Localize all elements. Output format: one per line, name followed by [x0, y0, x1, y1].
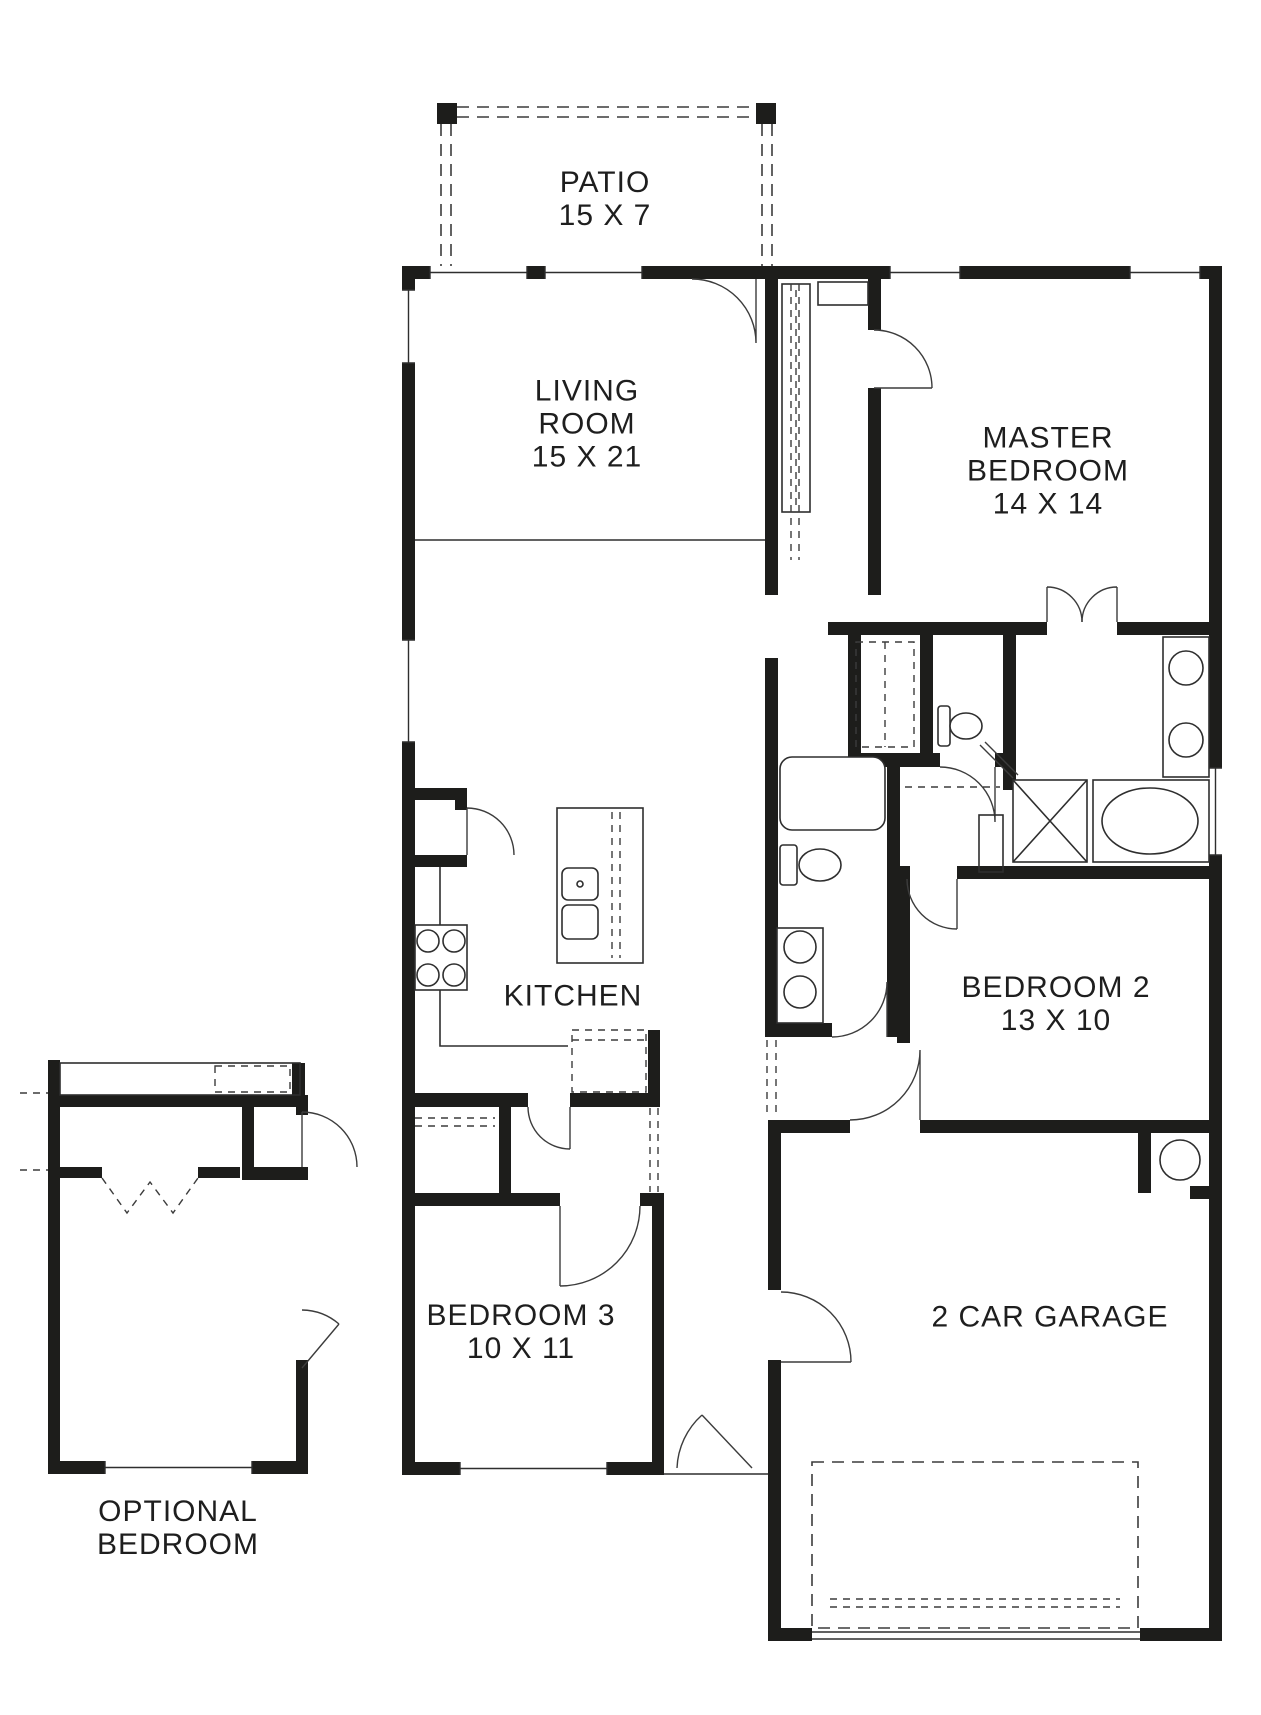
bedroom-3-dims: 10 X 11 [426, 1332, 615, 1365]
patio-label: PATIO 15 X 7 [559, 166, 652, 232]
hall-bathtub [780, 757, 885, 830]
kitchen-label: KITCHEN [504, 980, 643, 1013]
garage-name: 2 CAR GARAGE [931, 1301, 1168, 1334]
optional-bedroom-name-line1: OPTIONAL [97, 1495, 259, 1528]
optional-bedroom-outline [20, 1060, 357, 1474]
closet-shelf-dashes [415, 1118, 495, 1126]
master-bedroom-label: MASTER BEDROOM 14 X 14 [967, 422, 1129, 521]
coat-closet [782, 284, 810, 512]
driveway-outline [812, 1462, 1138, 1628]
living-room-name-line2: ROOM [532, 408, 642, 441]
master-vanity-double-sink [1163, 637, 1209, 777]
utility-shelves [856, 642, 914, 747]
hall-vanity [777, 928, 823, 1023]
living-room-name-line1: LIVING [532, 375, 642, 408]
floor-break-lines [415, 284, 1000, 1474]
bedroom-2-name: BEDROOM 2 [961, 971, 1150, 1004]
master-closet-niche [818, 282, 868, 305]
refrigerator [572, 1030, 646, 1092]
optional-bedroom-label: OPTIONAL BEDROOM [97, 1495, 259, 1561]
living-room-dims: 15 X 21 [532, 441, 642, 474]
water-heater [1160, 1140, 1200, 1180]
bedroom-3-label: BEDROOM 3 10 X 11 [426, 1299, 615, 1365]
floor-plan-drawing [0, 0, 1261, 1715]
hall-toilet [780, 845, 841, 885]
wc-toilet [938, 706, 982, 746]
living-room-label: LIVING ROOM 15 X 21 [532, 375, 642, 474]
master-bedroom-name-line1: MASTER [967, 422, 1129, 455]
optional-bedroom-name-line2: BEDROOM [97, 1528, 259, 1561]
bedroom-2-dims: 13 X 10 [961, 1004, 1150, 1037]
linen-closet [979, 815, 1003, 872]
kitchen-island-sink [557, 808, 643, 963]
bedroom-3-name: BEDROOM 3 [426, 1299, 615, 1332]
master-bedroom-dims: 14 X 14 [967, 488, 1129, 521]
garden-tub [1093, 780, 1209, 862]
kitchen-name: KITCHEN [504, 980, 643, 1013]
floor-plan-canvas: PATIO 15 X 7 LIVING ROOM 15 X 21 MASTER … [0, 0, 1261, 1715]
patio-name: PATIO [559, 166, 652, 199]
shower [1013, 780, 1087, 862]
master-bedroom-name-line2: BEDROOM [967, 455, 1129, 488]
range [415, 925, 467, 990]
patio-dims: 15 X 7 [559, 199, 652, 232]
bedroom-2-label: BEDROOM 2 13 X 10 [961, 971, 1150, 1037]
garage-label: 2 CAR GARAGE [931, 1301, 1168, 1334]
